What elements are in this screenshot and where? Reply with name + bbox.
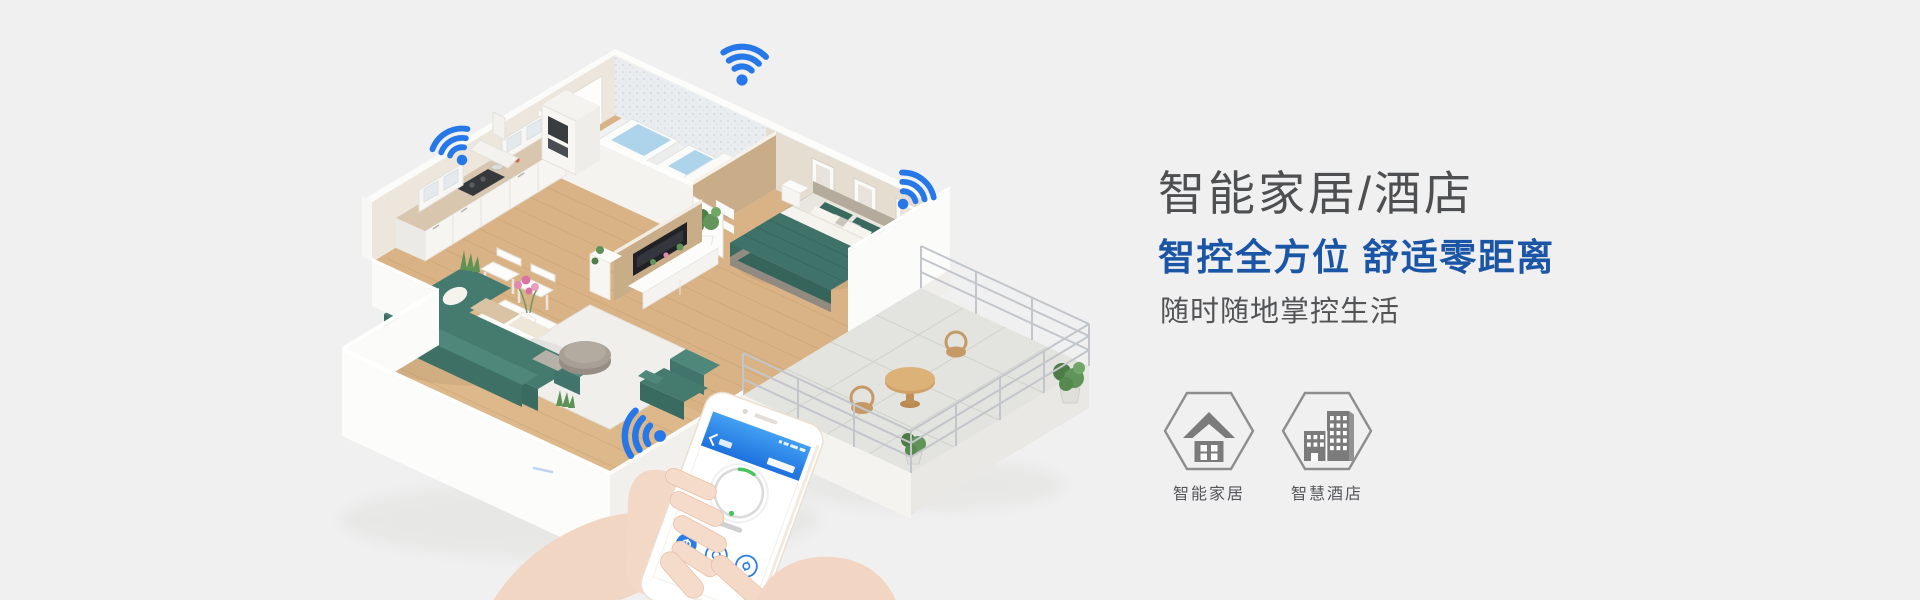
hotel-icon <box>1304 411 1354 461</box>
wifi-icon-bathroom <box>720 45 767 88</box>
category-smart-hotel[interactable]: 智慧酒店 <box>1267 391 1387 504</box>
apartment-illustration <box>250 0 1150 600</box>
hero-banner: 智能家居/酒店 智控全方位 舒适零距离 随时随地掌控生活 智能家居 <box>0 0 1920 600</box>
category-smart-home[interactable]: 智能家居 <box>1149 391 1269 504</box>
home-icon <box>1183 412 1235 462</box>
category-label-smart-hotel: 智慧酒店 <box>1267 480 1387 504</box>
hero-tagline: 随时随地掌控生活 <box>1160 296 1400 329</box>
category-label-smart-home: 智能家居 <box>1149 480 1269 504</box>
ottoman <box>559 341 611 375</box>
page-title: 智能家居/酒店 <box>1158 168 1474 220</box>
hero-subtitle: 智控全方位 舒适零距离 <box>1158 238 1555 279</box>
